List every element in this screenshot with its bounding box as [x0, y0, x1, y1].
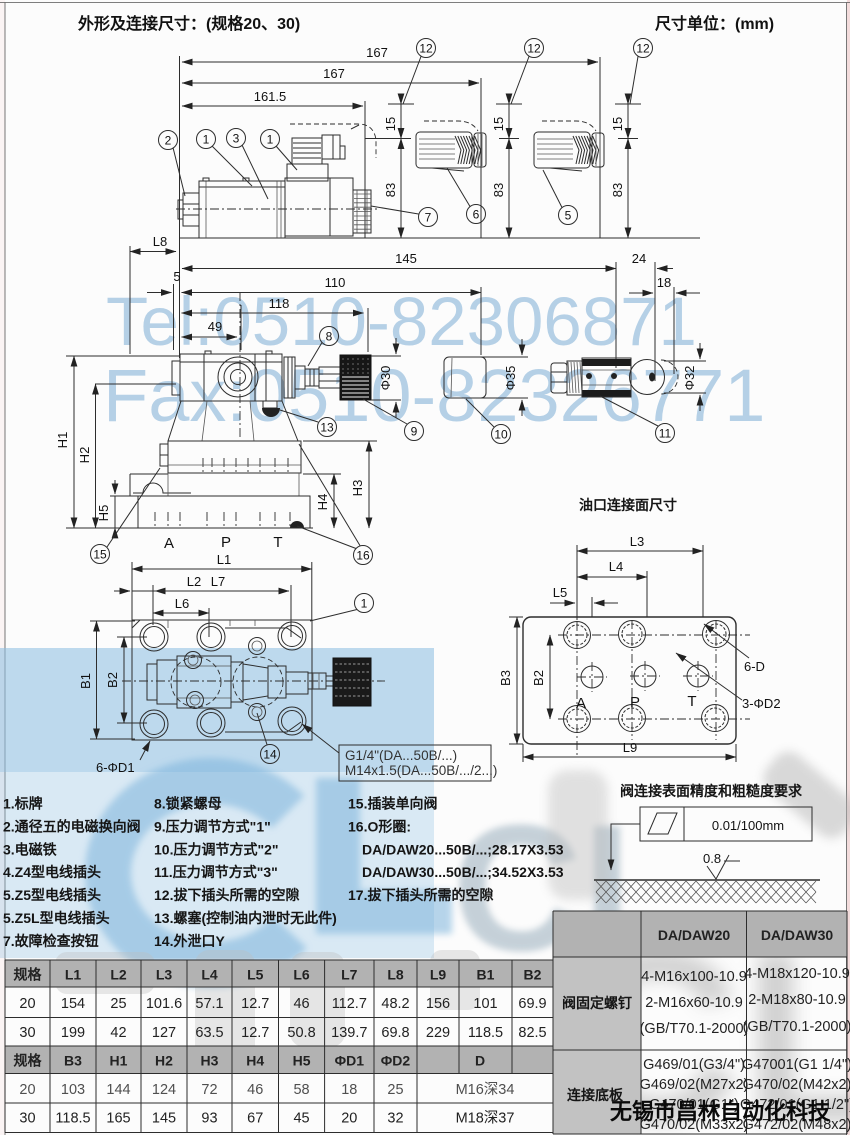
svg-text:D: D [475, 1053, 485, 1069]
svg-text:8.锁紧螺母: 8.锁紧螺母 [154, 796, 222, 812]
svg-text:L7: L7 [341, 967, 358, 983]
svg-text:16.O形圈:: 16.O形圈: [348, 818, 411, 834]
svg-text:229: 229 [426, 1025, 450, 1041]
svg-text:阀固定螺钉: 阀固定螺钉 [562, 995, 632, 1011]
svg-text:7: 7 [425, 210, 432, 224]
svg-text:83: 83 [610, 183, 625, 197]
svg-text:L6: L6 [293, 967, 310, 983]
svg-text:M16深34: M16深34 [456, 1081, 515, 1098]
svg-text:5: 5 [565, 208, 572, 222]
svg-text:11: 11 [659, 426, 672, 440]
svg-text:M14x1.5(DA...50B/.../2...): M14x1.5(DA...50B/.../2...) [345, 763, 497, 778]
svg-text:L5: L5 [553, 585, 567, 600]
svg-text:L3: L3 [156, 967, 173, 983]
svg-text:G469/01(G3/4"): G469/01(G3/4") [643, 1057, 745, 1073]
svg-text:1.标牌: 1.标牌 [3, 796, 43, 812]
svg-text:118.5: 118.5 [468, 1025, 503, 1041]
svg-text:L8: L8 [387, 967, 404, 983]
svg-text:G1/4"(DA...50B/...): G1/4"(DA...50B/...) [345, 748, 457, 763]
svg-text:4-M18x120-10.9: 4-M18x120-10.9 [744, 966, 850, 982]
svg-text:3.电磁铁: 3.电磁铁 [3, 841, 57, 857]
svg-text:18: 18 [341, 1082, 357, 1098]
svg-text:57.1: 57.1 [195, 996, 223, 1012]
svg-text:24: 24 [632, 251, 646, 266]
svg-text:20: 20 [19, 1082, 35, 1098]
svg-text:阀连接表面精度和粗糙度要求: 阀连接表面精度和粗糙度要求 [620, 783, 803, 799]
svg-text:2.通径五的电磁换向阀: 2.通径五的电磁换向阀 [3, 818, 141, 834]
svg-text:30: 30 [19, 1025, 35, 1041]
svg-text:58: 58 [293, 1082, 309, 1098]
svg-text:Fax:0510-82326771: Fax:0510-82326771 [103, 354, 765, 437]
svg-text:2-M18x80-10.9: 2-M18x80-10.9 [748, 992, 846, 1008]
svg-text:165: 165 [106, 1111, 130, 1127]
svg-text:20: 20 [19, 996, 35, 1012]
svg-text:DA/DAW30...50B/...;34.52X3.53: DA/DAW30...50B/...;34.52X3.53 [362, 864, 564, 880]
svg-text:H5: H5 [293, 1053, 311, 1069]
svg-text:5.Z5L型电线插头: 5.Z5L型电线插头 [3, 910, 110, 926]
svg-text:15: 15 [610, 117, 625, 131]
svg-text:(GB/T70.1-2000): (GB/T70.1-2000) [640, 1021, 749, 1037]
svg-text:3: 3 [233, 131, 240, 145]
svg-text:11.压力调节方式"3": 11.压力调节方式"3" [154, 864, 278, 880]
svg-text:16: 16 [356, 548, 370, 562]
svg-text:112.7: 112.7 [332, 996, 367, 1012]
svg-text:10.压力调节方式"2": 10.压力调节方式"2" [154, 841, 279, 857]
svg-text:L7: L7 [211, 574, 225, 589]
svg-text:B3: B3 [498, 670, 513, 686]
svg-text:101: 101 [473, 996, 497, 1012]
svg-text:P: P [630, 694, 640, 711]
svg-text:ΦD2: ΦD2 [381, 1053, 411, 1069]
svg-text:无锡市昌林自动化科技: 无锡市昌林自动化科技 [610, 1099, 831, 1124]
svg-text:101.6: 101.6 [146, 996, 182, 1012]
svg-text:规格: 规格 [14, 967, 43, 983]
svg-text:B2: B2 [105, 672, 120, 688]
svg-text:167: 167 [366, 45, 388, 60]
svg-text:Tel:0510-82306871: Tel:0510-82306871 [106, 283, 697, 360]
svg-text:145: 145 [152, 1111, 176, 1127]
svg-text:20: 20 [341, 1111, 357, 1127]
svg-text:4-M16x100-10.9: 4-M16x100-10.9 [641, 969, 747, 985]
svg-text:L3: L3 [630, 534, 644, 549]
svg-text:12: 12 [636, 41, 650, 55]
svg-text:DA/DAW20...50B/...;28.17X3.53: DA/DAW20...50B/...;28.17X3.53 [362, 841, 564, 857]
svg-text:6-D: 6-D [744, 659, 765, 674]
svg-text:B2: B2 [524, 967, 542, 983]
svg-text:1: 1 [361, 596, 368, 610]
svg-text:15: 15 [93, 547, 107, 561]
svg-text:12: 12 [527, 41, 541, 55]
svg-text:9.压力调节方式"1": 9.压力调节方式"1" [154, 818, 271, 834]
svg-text:124: 124 [152, 1082, 176, 1098]
svg-text:110: 110 [325, 275, 346, 290]
svg-text:12.7: 12.7 [241, 996, 269, 1012]
svg-text:6: 6 [473, 207, 480, 221]
svg-text:8: 8 [326, 329, 333, 343]
svg-text:144: 144 [106, 1082, 130, 1098]
svg-text:3-ΦD2: 3-ΦD2 [742, 696, 781, 711]
svg-text:12: 12 [419, 41, 433, 55]
svg-text:15.插装单向阀: 15.插装单向阀 [348, 796, 437, 812]
svg-text:17.拔下插头所需的空隙: 17.拔下插头所需的空隙 [348, 887, 493, 903]
svg-text:H5: H5 [96, 505, 111, 522]
svg-text:DA/DAW20: DA/DAW20 [658, 927, 731, 943]
svg-text:48.2: 48.2 [381, 996, 409, 1012]
svg-text:L2: L2 [187, 574, 201, 589]
svg-text:H1: H1 [55, 432, 70, 449]
svg-text:0.01/100mm: 0.01/100mm [712, 818, 784, 833]
svg-text:T: T [273, 534, 282, 551]
svg-text:156: 156 [426, 996, 450, 1012]
svg-text:46: 46 [293, 996, 309, 1012]
svg-text:118.5: 118.5 [55, 1111, 90, 1127]
svg-text:B3: B3 [64, 1053, 82, 1069]
svg-text:L4: L4 [201, 967, 218, 983]
svg-text:T: T [687, 693, 696, 710]
svg-text:Φ32: Φ32 [682, 366, 697, 391]
svg-text:B1: B1 [78, 673, 93, 689]
svg-text:尺寸单位：(mm): 尺寸单位：(mm) [655, 14, 774, 33]
svg-text:4.Z4型电线插头: 4.Z4型电线插头 [3, 864, 101, 880]
svg-text:1: 1 [267, 132, 274, 146]
svg-text:2-M16x60-10.9: 2-M16x60-10.9 [645, 995, 743, 1011]
svg-text:82.5: 82.5 [518, 1025, 546, 1041]
svg-text:G47001(G1 1/4"): G47001(G1 1/4") [742, 1057, 850, 1073]
svg-text:69.9: 69.9 [518, 996, 546, 1012]
svg-text:L2: L2 [110, 967, 127, 983]
svg-text:139.7: 139.7 [331, 1025, 367, 1041]
svg-text:2: 2 [165, 133, 172, 147]
svg-text:油口连接面尺寸: 油口连接面尺寸 [579, 497, 677, 513]
svg-text:12.7: 12.7 [241, 1025, 269, 1041]
svg-text:103: 103 [61, 1082, 85, 1098]
svg-text:46: 46 [247, 1082, 263, 1098]
svg-text:DA/DAW30: DA/DAW30 [761, 927, 834, 943]
svg-text:G470/02(M42x2): G470/02(M42x2) [743, 1077, 850, 1093]
svg-text:14.外泄口Y: 14.外泄口Y [154, 933, 225, 949]
svg-text:25: 25 [387, 1082, 403, 1098]
svg-text:L9: L9 [430, 967, 447, 983]
svg-text:Φ35: Φ35 [503, 366, 518, 391]
svg-text:83: 83 [491, 183, 506, 197]
svg-text:32: 32 [387, 1111, 403, 1127]
svg-text:13.螺塞(控制油内泄时无此件): 13.螺塞(控制油内泄时无此件) [154, 910, 337, 926]
svg-text:12.拔下插头所需的空隙: 12.拔下插头所需的空隙 [154, 887, 299, 903]
svg-text:L1: L1 [65, 967, 82, 983]
svg-text:H4: H4 [315, 494, 330, 511]
svg-text:(GB/T70.1-2000): (GB/T70.1-2000) [743, 1019, 850, 1035]
svg-text:14: 14 [263, 747, 277, 761]
svg-text:H2: H2 [77, 447, 92, 464]
svg-text:A: A [164, 535, 174, 552]
svg-text:L4: L4 [609, 559, 623, 574]
svg-text:154: 154 [61, 996, 85, 1012]
svg-text:H2: H2 [155, 1053, 173, 1069]
svg-text:10: 10 [494, 427, 508, 441]
svg-text:93: 93 [201, 1111, 217, 1127]
svg-text:49: 49 [208, 319, 222, 334]
svg-text:H3: H3 [350, 480, 365, 497]
svg-text:25: 25 [110, 996, 126, 1012]
svg-text:规格: 规格 [14, 1053, 43, 1069]
svg-text:15: 15 [383, 117, 398, 131]
svg-text:199: 199 [61, 1025, 85, 1041]
svg-text:167: 167 [323, 66, 345, 81]
svg-text:Φ30: Φ30 [378, 366, 393, 391]
svg-text:A: A [576, 695, 586, 712]
svg-text:67: 67 [247, 1111, 263, 1127]
svg-text:L6: L6 [175, 596, 189, 611]
svg-text:B1: B1 [477, 967, 495, 983]
svg-text:H3: H3 [201, 1053, 219, 1069]
svg-text:30: 30 [19, 1111, 35, 1127]
svg-text:L1: L1 [217, 552, 231, 567]
svg-text:H1: H1 [110, 1053, 128, 1069]
svg-text:118: 118 [269, 296, 290, 311]
svg-text:127: 127 [152, 1025, 176, 1041]
svg-text:50.8: 50.8 [287, 1025, 315, 1041]
svg-text:145: 145 [395, 251, 417, 266]
svg-text:P: P [221, 534, 231, 551]
svg-text:5: 5 [173, 269, 180, 284]
svg-text:B2: B2 [531, 670, 546, 686]
svg-text:72: 72 [201, 1082, 217, 1098]
svg-text:13: 13 [320, 420, 334, 434]
svg-text:1: 1 [203, 132, 210, 146]
svg-text:9: 9 [411, 424, 418, 438]
svg-text:L5: L5 [247, 967, 264, 983]
svg-text:45: 45 [293, 1111, 309, 1127]
svg-text:ΦD1: ΦD1 [335, 1053, 365, 1069]
svg-text:18: 18 [657, 275, 671, 290]
svg-text:L9: L9 [623, 740, 637, 755]
svg-text:M18深37: M18深37 [456, 1110, 515, 1127]
svg-text:0.8: 0.8 [703, 851, 721, 866]
svg-text:L8: L8 [153, 234, 167, 249]
svg-text:G469/02(M27x2): G469/02(M27x2) [640, 1077, 749, 1093]
svg-text:15: 15 [491, 117, 506, 131]
svg-text:42: 42 [110, 1025, 126, 1041]
svg-text:7.故障检查按钮: 7.故障检查按钮 [3, 933, 99, 949]
svg-text:69.8: 69.8 [381, 1025, 409, 1041]
svg-text:外形及连接尺寸：(规格20、30): 外形及连接尺寸：(规格20、30) [77, 14, 300, 33]
svg-text:H4: H4 [246, 1053, 264, 1069]
svg-text:161.5: 161.5 [254, 89, 287, 104]
svg-text:6-ΦD1: 6-ΦD1 [96, 760, 135, 775]
svg-text:5.Z5型电线插头: 5.Z5型电线插头 [3, 887, 101, 903]
svg-text:83: 83 [383, 183, 398, 197]
svg-text:63.5: 63.5 [195, 1025, 223, 1041]
